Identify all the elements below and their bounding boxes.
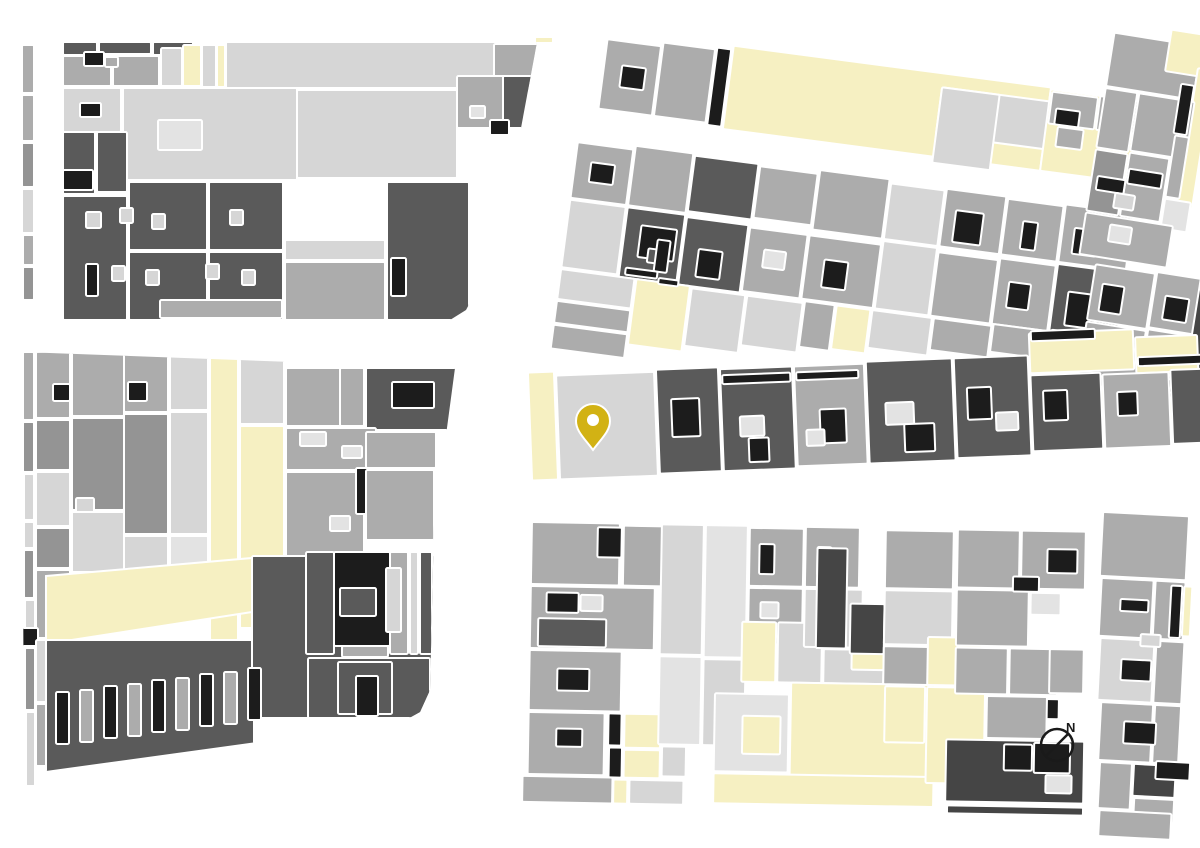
building-footprint — [1004, 744, 1032, 770]
parcel — [1055, 127, 1083, 150]
parcel — [285, 262, 385, 320]
parcel — [366, 432, 436, 468]
parcel — [330, 516, 350, 531]
parcel — [224, 672, 237, 724]
parcel — [120, 208, 133, 223]
parcel — [1098, 810, 1171, 840]
parcel — [688, 156, 759, 220]
building-footprint — [1013, 576, 1039, 591]
block-westcentral — [22, 352, 458, 772]
parcel — [342, 646, 388, 657]
parcel — [80, 690, 93, 742]
parcel — [753, 166, 817, 225]
building-footprint — [356, 676, 378, 716]
parcel — [161, 48, 182, 86]
building-footprint — [1155, 761, 1190, 781]
parcel — [242, 270, 255, 285]
parcel — [812, 170, 889, 239]
building-footprint — [609, 747, 623, 777]
parcel — [170, 412, 208, 534]
building-footprint — [654, 239, 671, 272]
parcel — [875, 241, 937, 315]
building-footprint — [200, 674, 213, 726]
block-east-bottom — [1086, 512, 1200, 841]
parcel — [206, 264, 219, 279]
parcel — [806, 429, 825, 446]
parcel — [1120, 153, 1170, 222]
parcel — [22, 143, 34, 187]
parcel — [629, 780, 683, 805]
parcel — [158, 120, 202, 150]
parcel — [300, 432, 326, 446]
parcel — [760, 602, 778, 618]
building-footprint — [1123, 721, 1156, 745]
parcel — [72, 512, 124, 572]
parcel — [123, 88, 297, 180]
building-footprint — [608, 713, 622, 745]
parcel — [996, 412, 1019, 431]
parcel — [387, 182, 469, 320]
block-east-top — [1079, 21, 1200, 270]
parcel — [176, 678, 189, 730]
building-footprint — [84, 52, 104, 66]
parcel — [613, 779, 627, 803]
building-footprint — [619, 65, 646, 90]
parcel — [22, 45, 34, 93]
parcel — [742, 716, 781, 755]
parcel — [1045, 775, 1071, 793]
parcel — [72, 352, 124, 416]
parcel — [654, 43, 715, 123]
building-footprint — [1162, 296, 1189, 323]
building-footprint — [967, 387, 992, 420]
parcel — [72, 418, 124, 510]
parcel — [932, 87, 999, 170]
parcel — [36, 420, 70, 470]
parcel — [22, 95, 34, 141]
parcel — [24, 474, 34, 520]
building-footprint — [86, 264, 98, 296]
parcel — [46, 640, 254, 772]
parcel — [170, 352, 208, 410]
parcel — [386, 568, 401, 632]
parcel — [1182, 586, 1193, 636]
parcel — [986, 696, 1047, 739]
parcel — [741, 622, 776, 683]
building-footprint — [952, 210, 984, 245]
parcel — [124, 414, 168, 534]
parcel — [580, 595, 602, 611]
parcel — [561, 200, 625, 275]
parcel — [24, 522, 34, 548]
parcel — [217, 45, 225, 87]
parcel — [1030, 593, 1060, 616]
building-footprint — [1096, 176, 1126, 194]
parcel — [1165, 30, 1200, 79]
parcel — [762, 249, 786, 270]
building-footprint — [557, 669, 589, 692]
parcel — [410, 552, 418, 654]
parcel — [97, 132, 127, 192]
parcel — [340, 368, 364, 426]
parcel — [152, 214, 165, 229]
building-footprint — [671, 398, 700, 437]
building-footprint — [1120, 599, 1149, 612]
building-footprint — [152, 680, 165, 732]
parcel — [160, 300, 282, 318]
building-footprint — [1169, 586, 1183, 639]
building-footprint — [1117, 391, 1138, 416]
parcel — [1100, 512, 1189, 580]
parcel — [883, 646, 930, 685]
parcel — [930, 252, 998, 323]
parcel — [36, 472, 70, 526]
building-footprint — [556, 728, 582, 746]
building-footprint — [1047, 549, 1077, 574]
parcel — [1108, 224, 1132, 244]
building-footprint — [759, 544, 775, 574]
north-label: N — [1066, 720, 1075, 735]
parcel — [113, 56, 159, 86]
parcel — [23, 352, 34, 420]
parcel — [1113, 193, 1135, 211]
parcel — [528, 372, 558, 481]
parcel — [956, 589, 1029, 646]
parcel — [209, 182, 283, 250]
parcel — [957, 529, 1020, 588]
parcel — [1140, 634, 1161, 647]
parcel — [885, 402, 914, 425]
building-footprint — [1120, 659, 1151, 682]
parcel — [24, 550, 34, 598]
parcel — [1170, 368, 1200, 443]
parcel — [99, 42, 151, 54]
parcel — [230, 210, 243, 225]
building-footprint — [248, 668, 261, 720]
parcel — [240, 352, 284, 424]
building-footprint — [128, 382, 147, 401]
parcel — [306, 552, 334, 654]
building-footprint — [821, 259, 848, 290]
building-footprint — [695, 249, 722, 280]
parcel — [684, 288, 745, 353]
parcel — [660, 524, 704, 655]
building-footprint — [53, 384, 70, 401]
parcel — [624, 714, 661, 749]
parcel — [885, 530, 954, 589]
building-footprint — [104, 686, 117, 738]
building-footprint — [1098, 284, 1124, 315]
parcel — [831, 305, 870, 353]
parcel — [799, 301, 835, 351]
parcel — [340, 588, 376, 616]
parcel — [342, 446, 362, 458]
parcel — [658, 656, 702, 745]
parcel — [628, 146, 693, 213]
block-south-main — [522, 522, 1088, 816]
parcel — [1049, 649, 1084, 694]
parcel — [850, 604, 885, 655]
parcel — [202, 45, 216, 87]
parcel — [713, 773, 933, 807]
building-footprint — [658, 278, 679, 287]
parcel — [86, 212, 101, 228]
parcel — [23, 235, 34, 265]
parcel — [36, 528, 70, 568]
building-footprint — [56, 692, 69, 744]
parcel — [930, 318, 992, 357]
parcel — [105, 57, 118, 67]
building-footprint — [1006, 282, 1031, 311]
parcel — [538, 618, 606, 647]
building-footprint — [749, 437, 770, 462]
parcel — [22, 189, 34, 233]
parcel — [23, 422, 34, 472]
parcel — [1098, 762, 1132, 810]
building-footprint — [1138, 354, 1200, 366]
city-blocks-layer — [22, 21, 1200, 841]
parcel — [624, 750, 660, 779]
parcel — [662, 746, 687, 776]
parcel — [297, 90, 457, 178]
figure-ground-map: N — [0, 0, 1200, 848]
parcel — [146, 270, 159, 285]
parcel — [1153, 641, 1184, 704]
parcel — [470, 106, 485, 118]
parcel — [884, 183, 945, 246]
building-footprint — [391, 258, 406, 296]
parcel — [947, 805, 1083, 815]
parcel — [25, 648, 35, 710]
building-footprint — [589, 162, 615, 185]
map-pin-hole — [587, 414, 599, 426]
parcel — [366, 470, 434, 540]
parcel — [628, 279, 690, 351]
parcel — [128, 684, 141, 736]
parcel — [420, 552, 432, 654]
building-footprint — [796, 370, 858, 380]
block-northwest — [63, 42, 538, 320]
parcel — [23, 267, 34, 300]
map-canvas: N — [0, 0, 1200, 848]
parcel — [112, 266, 125, 281]
building-footprint — [1043, 390, 1068, 421]
parcel — [816, 548, 848, 649]
parcel — [741, 296, 803, 353]
parcel — [749, 528, 804, 587]
building-footprint — [597, 527, 622, 557]
parcel — [129, 182, 207, 250]
building-footprint — [80, 103, 101, 117]
building-footprint — [1054, 108, 1080, 127]
parcel — [1135, 335, 1198, 373]
building-footprint — [392, 382, 434, 408]
parcel — [183, 45, 201, 86]
parcel — [884, 686, 925, 743]
parcel — [285, 240, 385, 260]
building-footprint — [1020, 221, 1039, 251]
building-footprint — [1031, 329, 1095, 341]
parcel — [740, 416, 765, 437]
building-footprint — [546, 592, 578, 613]
parcel — [522, 776, 612, 804]
building-footprint — [722, 373, 790, 385]
building-footprint — [63, 170, 93, 190]
parcel — [26, 712, 35, 786]
parcel — [955, 647, 1008, 694]
building-footprint — [904, 423, 935, 452]
building-footprint — [490, 120, 509, 135]
parcel — [867, 310, 931, 356]
parcel — [535, 37, 553, 43]
